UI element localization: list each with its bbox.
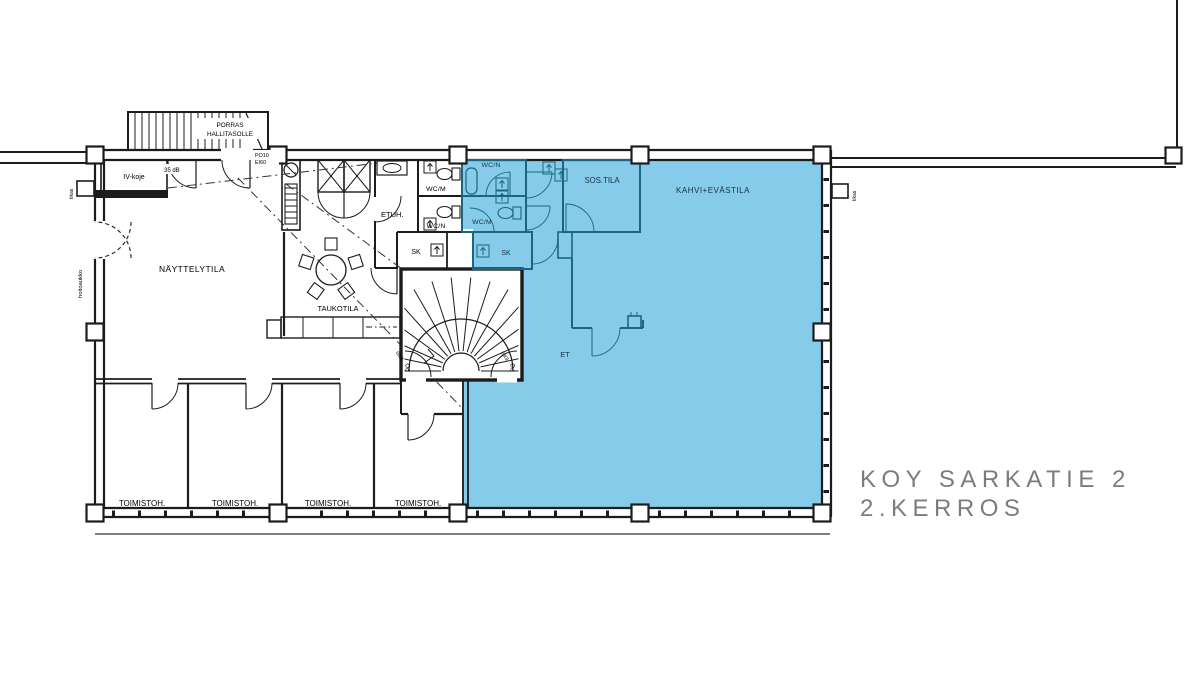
window-tick bbox=[138, 511, 141, 517]
room-label-sk-blue: SK bbox=[501, 250, 511, 257]
window-tick bbox=[528, 511, 531, 517]
window-tick bbox=[190, 511, 193, 517]
room-label-iv-koje: IV-koje bbox=[123, 174, 145, 181]
top-door-code: PO10 bbox=[255, 153, 269, 159]
room-label-etuh: ETUH. bbox=[381, 210, 404, 219]
window-tick bbox=[824, 230, 830, 233]
window-tick bbox=[606, 511, 609, 517]
window-tick bbox=[824, 282, 830, 285]
room-label-sk-white: SK bbox=[411, 249, 421, 256]
chair bbox=[348, 254, 363, 269]
window-tick bbox=[824, 412, 830, 415]
room-label-taukotila: TAUKOTILA bbox=[317, 304, 358, 313]
window-tick bbox=[424, 511, 427, 517]
window-tick bbox=[824, 308, 830, 311]
window-tick bbox=[580, 511, 583, 517]
room-label-wcm-white: WC/M bbox=[426, 186, 446, 193]
sink-bowl bbox=[383, 164, 401, 173]
floor-plan-page: PORRAS HALLITASOLLE bbox=[0, 0, 1200, 675]
chair bbox=[338, 283, 355, 300]
window-tick bbox=[502, 511, 505, 517]
top-wall-door-gap bbox=[221, 148, 253, 162]
round-table bbox=[316, 255, 346, 285]
window-tick bbox=[684, 511, 687, 517]
external-stair-label-line1: PORRAS bbox=[217, 122, 244, 129]
stair-door-code: PO bbox=[406, 363, 412, 372]
room-label-wcm-blue: WC/M bbox=[472, 219, 492, 226]
vent-wcm-white bbox=[424, 161, 436, 173]
room-label-kahvi: KAHVI+EVÄSTILA bbox=[676, 186, 750, 195]
toilet-wcn-white bbox=[437, 206, 460, 218]
window-tick bbox=[824, 204, 830, 207]
window-tick bbox=[824, 490, 830, 493]
room-label-et: ET bbox=[560, 350, 570, 359]
ladder-box-left bbox=[77, 181, 94, 196]
window-tick bbox=[824, 178, 830, 181]
plan-title-line2: 2.KERROS bbox=[860, 495, 1025, 522]
window-tick bbox=[658, 511, 661, 517]
toilet-wcm-white bbox=[437, 168, 460, 180]
window-tick bbox=[736, 511, 739, 517]
ladder-label-left: tikas bbox=[69, 188, 75, 199]
window-tick bbox=[346, 511, 349, 517]
plan-title: KOY SARKATIE 2 2.KERROS bbox=[860, 466, 1131, 522]
window-tick bbox=[164, 511, 167, 517]
window-tick bbox=[372, 511, 375, 517]
window-tick bbox=[710, 511, 713, 517]
counter-end-box bbox=[267, 320, 281, 338]
window-tick bbox=[824, 360, 830, 363]
window-tick bbox=[112, 511, 115, 517]
window-tick bbox=[216, 511, 219, 517]
window-tick bbox=[476, 511, 479, 517]
room-label-toimistoh-4: TOIMISTOH. bbox=[395, 499, 441, 508]
top-door-rating: EI60 bbox=[255, 160, 266, 166]
left-wall-door-gap bbox=[92, 221, 106, 259]
room-label-wcn-blue: WC/N bbox=[482, 162, 501, 169]
window-tick bbox=[398, 511, 401, 517]
stair-door-code: PO bbox=[511, 363, 517, 372]
window-tick bbox=[762, 511, 765, 517]
plan-title-line1: KOY SARKATIE 2 bbox=[860, 466, 1131, 493]
ladder-box-right bbox=[832, 184, 848, 198]
room-label-toimistoh-2: TOIMISTOH. bbox=[212, 499, 258, 508]
window-tick bbox=[320, 511, 323, 517]
chair bbox=[325, 238, 337, 250]
room-label-sos-tila: SOS.TILA bbox=[584, 176, 620, 185]
window-tick bbox=[554, 511, 557, 517]
window-tick bbox=[788, 511, 791, 517]
room-label-wcn-white: WC/N bbox=[427, 223, 446, 230]
window-tick bbox=[824, 438, 830, 441]
ladder-rungs bbox=[285, 188, 297, 218]
service-hatch-label: hoitoaukko bbox=[78, 270, 84, 298]
window-tick bbox=[824, 386, 830, 389]
room-label-nayttelytila: NÄYTTELYTILA bbox=[159, 264, 225, 274]
ladder-label-right: tikas bbox=[852, 190, 858, 201]
floor-plan-drawing: PORRAS HALLITASOLLE bbox=[0, 0, 1200, 675]
chair bbox=[307, 283, 324, 300]
external-stair-label-line2: HALLITASOLLE bbox=[207, 131, 253, 138]
window-tick bbox=[242, 511, 245, 517]
chair bbox=[299, 254, 314, 269]
room-label-toimistoh-3: TOIMISTOH. bbox=[305, 499, 351, 508]
room-label-toimistoh-1: TOIMISTOH. bbox=[119, 499, 165, 508]
thick-wall-bar bbox=[96, 190, 168, 198]
window-tick bbox=[824, 256, 830, 259]
acoustic-door-label: 35 dB bbox=[164, 168, 180, 174]
window-tick bbox=[824, 464, 830, 467]
